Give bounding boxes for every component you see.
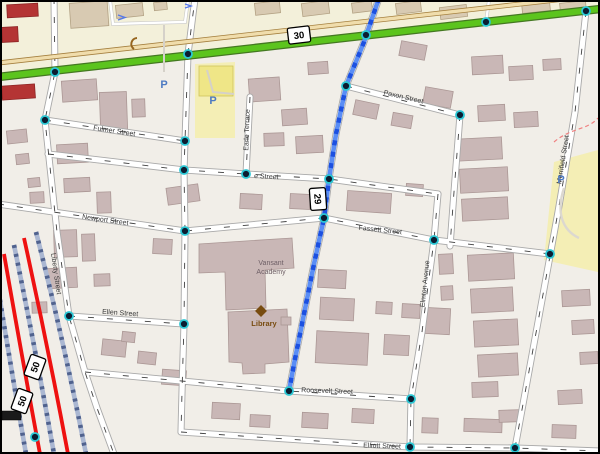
building — [6, 129, 27, 144]
parking-icon: P — [160, 79, 167, 91]
node-marker[interactable] — [482, 18, 490, 26]
building — [477, 353, 518, 377]
building — [319, 297, 354, 321]
node-marker[interactable] — [582, 7, 590, 15]
building — [543, 59, 562, 71]
dark-building — [2, 411, 21, 420]
building — [318, 269, 347, 288]
building — [296, 135, 324, 153]
building — [154, 2, 168, 11]
building — [558, 389, 583, 404]
node-marker[interactable] — [320, 214, 328, 222]
node-marker[interactable] — [65, 312, 73, 320]
building — [376, 302, 393, 315]
node-marker[interactable] — [181, 137, 189, 145]
node-marker[interactable] — [180, 320, 188, 328]
node-marker[interactable] — [51, 68, 59, 76]
building — [2, 84, 35, 100]
node-marker[interactable] — [184, 50, 192, 58]
building — [472, 55, 504, 75]
building — [351, 2, 372, 13]
node-marker[interactable] — [430, 236, 438, 244]
building — [308, 61, 329, 74]
street-label-elliott: Elliott Street — [363, 442, 401, 450]
node-marker[interactable] — [285, 387, 293, 395]
academy-library-buildings — [199, 238, 294, 374]
parking-icon: P — [209, 95, 216, 107]
building — [473, 319, 518, 347]
building — [69, 2, 109, 28]
map-svg[interactable]: Fulmer Street e Street Earle Terrace New… — [2, 2, 598, 452]
node-marker[interactable] — [242, 170, 250, 178]
building — [580, 352, 598, 365]
building — [457, 137, 502, 161]
building — [464, 418, 502, 432]
street-label-earle-terrace: Earle Terrace — [243, 109, 251, 151]
svg-text:29: 29 — [311, 193, 323, 204]
academy-label-line1: Vansant — [258, 260, 283, 267]
building — [478, 104, 506, 121]
building — [353, 100, 380, 120]
building — [391, 112, 413, 128]
route-29-shield: 29 — [309, 187, 326, 210]
building — [132, 99, 146, 117]
map-canvas[interactable]: Fulmer Street e Street Earle Terrace New… — [0, 0, 600, 454]
building — [352, 408, 375, 423]
building — [97, 192, 112, 213]
route-30-shield: 30 — [287, 26, 311, 45]
building — [441, 286, 454, 301]
building — [122, 331, 136, 342]
building — [467, 253, 514, 281]
building — [61, 79, 97, 102]
street-label-newport: Newport Street — [82, 214, 129, 227]
node-marker[interactable] — [342, 82, 350, 90]
building — [2, 27, 18, 43]
building — [422, 418, 439, 434]
building — [472, 382, 499, 398]
node-marker[interactable] — [181, 227, 189, 235]
building — [514, 111, 539, 127]
road-roosevelt-street[interactable] — [85, 372, 411, 399]
building — [281, 108, 307, 126]
node-marker[interactable] — [325, 175, 333, 183]
building — [212, 402, 241, 419]
building — [153, 239, 173, 255]
street-label-partial: e Street — [254, 173, 279, 181]
building — [290, 193, 311, 209]
building — [137, 351, 156, 365]
building — [250, 414, 271, 427]
building — [562, 289, 591, 306]
building — [7, 3, 39, 18]
node-marker[interactable] — [406, 443, 414, 451]
building — [240, 193, 263, 209]
building — [94, 274, 110, 287]
building — [459, 167, 508, 193]
node-marker[interactable] — [41, 116, 49, 124]
route-50-shield: 50 — [24, 354, 47, 380]
parking-icon: P — [557, 174, 564, 186]
academy-label-line2: Academy — [256, 269, 286, 276]
svg-text:30: 30 — [293, 30, 305, 42]
library-label: Library — [251, 319, 277, 328]
building — [572, 319, 595, 334]
node-marker[interactable] — [511, 444, 519, 452]
street-label-fassett: Fassett Street — [358, 225, 402, 237]
building — [254, 2, 280, 15]
node-marker[interactable] — [456, 111, 464, 119]
building — [509, 65, 534, 80]
building — [438, 254, 453, 275]
building — [28, 177, 41, 187]
node-marker[interactable] — [31, 433, 39, 441]
building — [64, 177, 91, 192]
building — [402, 304, 421, 319]
building — [302, 412, 329, 428]
building — [383, 334, 409, 355]
building — [399, 41, 427, 61]
building — [264, 133, 284, 147]
node-marker[interactable] — [180, 166, 188, 174]
building — [82, 234, 96, 261]
building — [346, 190, 391, 213]
building — [315, 331, 369, 366]
building — [16, 153, 30, 164]
node-marker[interactable] — [546, 250, 554, 258]
building — [461, 197, 508, 221]
building — [470, 287, 513, 313]
building — [552, 425, 576, 439]
building — [30, 192, 45, 204]
node-marker[interactable] — [407, 395, 415, 403]
node-marker[interactable] — [362, 31, 370, 39]
